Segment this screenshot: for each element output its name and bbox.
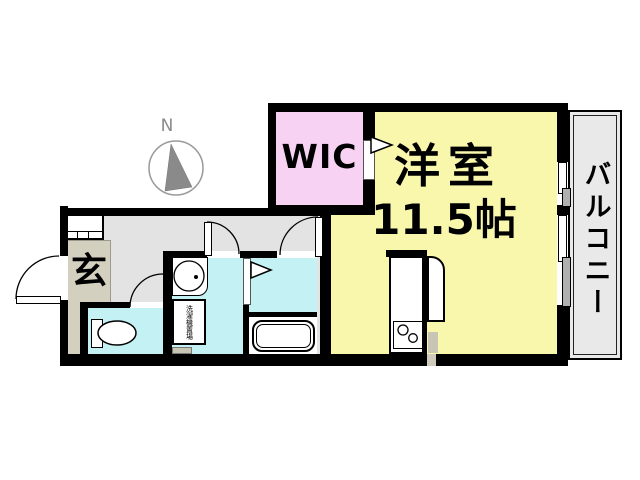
entrance-door-leaf [16, 296, 61, 304]
wall-bottom [60, 354, 568, 366]
dressing-door-leaf [315, 217, 323, 257]
kitchen-end-panel [427, 256, 445, 322]
main-room-size-label: 11.5帖 [331, 199, 557, 241]
wall-top [268, 103, 568, 112]
washroom-door-leaf [204, 222, 212, 256]
wall-toilet-left [80, 302, 88, 354]
wic-wall-right-a [363, 112, 375, 140]
door-threshold-dressing [277, 251, 317, 258]
entrance-label: 玄 [67, 254, 111, 290]
window-lower-sash-a [558, 215, 567, 262]
wall-right-upper [557, 112, 568, 162]
entrance-door-arc [16, 256, 59, 299]
entrance-floor-strip [68, 305, 80, 354]
wic-wall-left [268, 103, 276, 215]
wall-gap-bottom [427, 354, 436, 366]
pipe-space [428, 332, 438, 353]
wall-bath-horizontal [249, 312, 317, 317]
compass-label: N [155, 118, 179, 135]
bathtub [252, 320, 315, 352]
compass-circle [149, 141, 203, 195]
wall-washroom-left [163, 251, 172, 354]
washroom-step [172, 347, 192, 354]
wash-basin-counter [172, 257, 208, 296]
compass-needle [165, 144, 192, 191]
wall-left-lower [60, 300, 68, 354]
main-room-label: 洋室 [331, 143, 557, 189]
stove [393, 321, 423, 349]
balcony-label: バルコニー [568, 122, 622, 358]
wall-hall-bottom-b [240, 251, 277, 258]
floor-plan: N WIC 洋室 11.5帖 バルコニー 玄 洗濯機置場 [0, 0, 640, 480]
toilet-tank [91, 319, 103, 348]
wall-bath-left [243, 303, 249, 354]
bathroom-door-panel [243, 258, 251, 305]
shoe-cabinet [66, 214, 104, 240]
washing-machine-label: 洗濯機置場 [172, 301, 206, 343]
dressing-floor [249, 258, 317, 312]
door-threshold-toilet [130, 302, 163, 308]
